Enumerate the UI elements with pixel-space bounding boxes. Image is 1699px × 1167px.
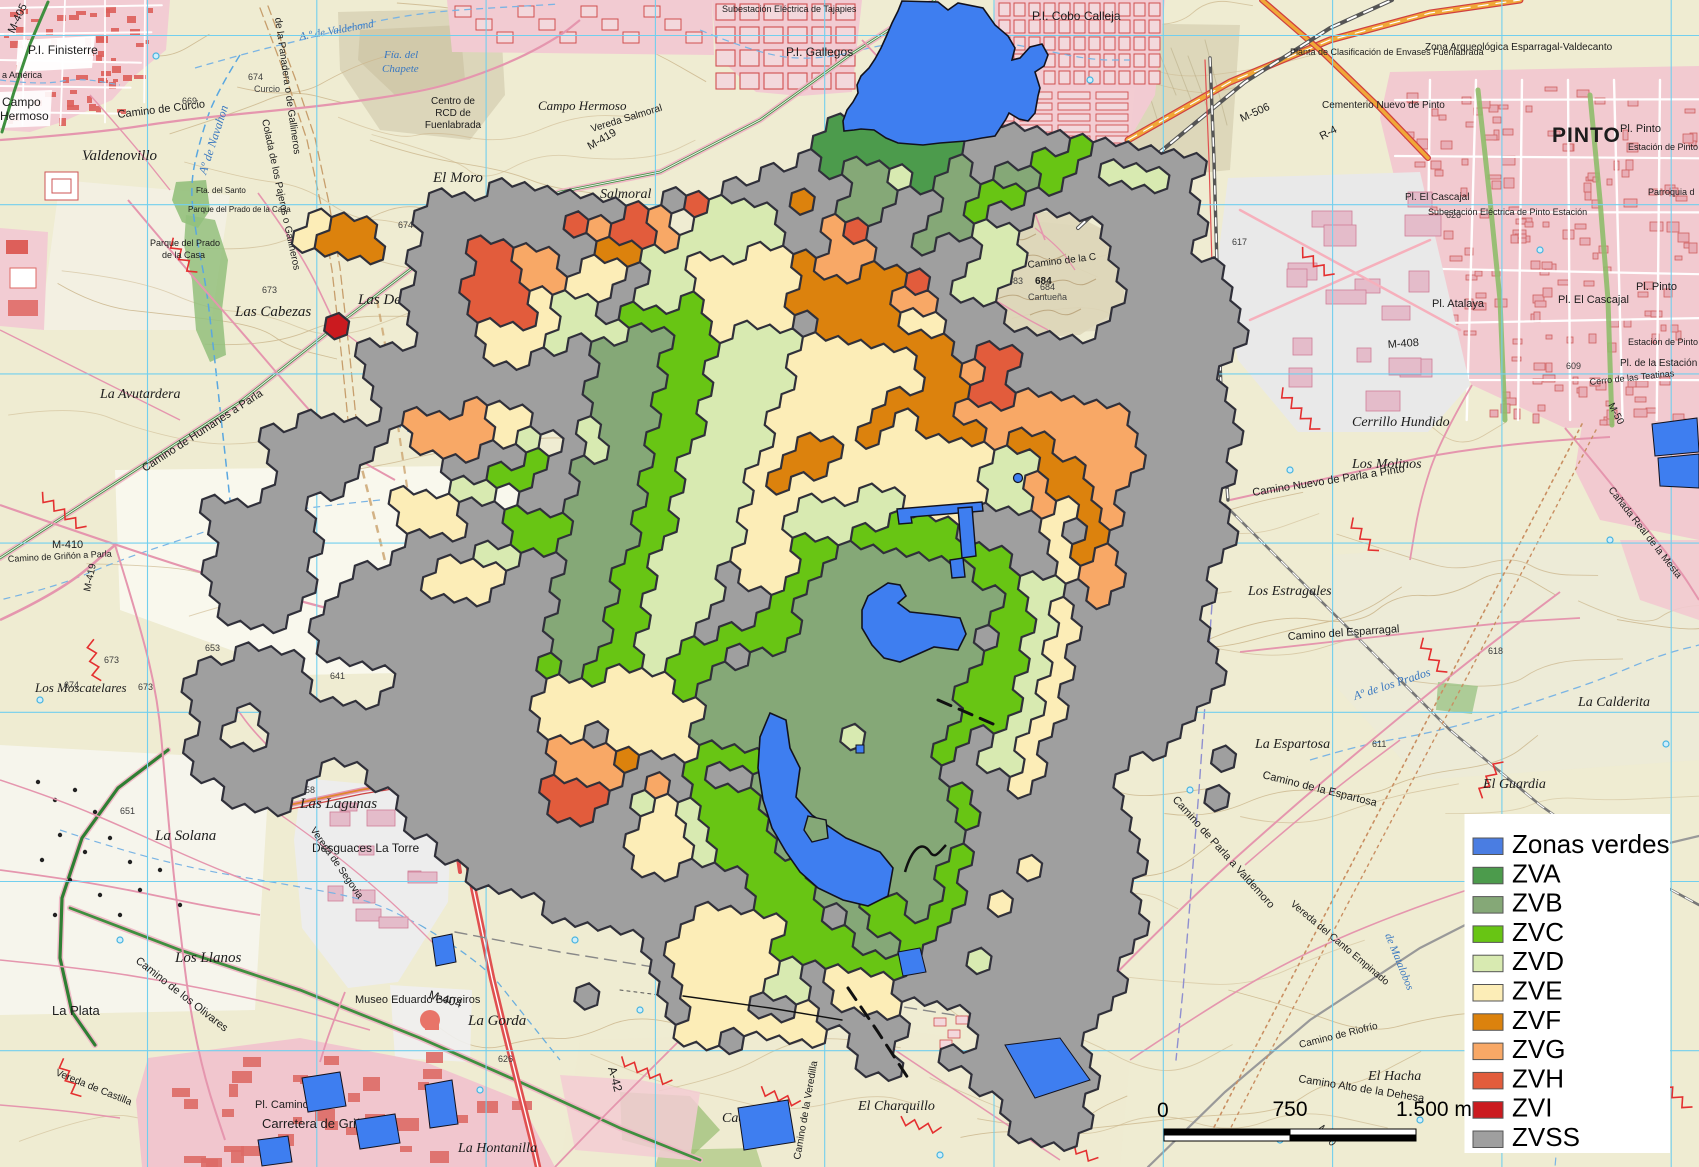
svg-text:Fía. del: Fía. del <box>383 49 418 61</box>
svg-text:ZVSS: ZVSS <box>1512 1122 1580 1152</box>
svg-text:Valdenovillo: Valdenovillo <box>82 148 157 164</box>
svg-text:617: 617 <box>1232 237 1247 247</box>
svg-text:641: 641 <box>330 671 345 681</box>
svg-text:PINTO: PINTO <box>1552 124 1621 147</box>
svg-text:Pl. Atalaya: Pl. Atalaya <box>1432 298 1485 310</box>
svg-text:RCD de: RCD de <box>435 108 471 119</box>
svg-text:La Avutardera: La Avutardera <box>99 387 181 402</box>
svg-text:0: 0 <box>1157 1099 1169 1122</box>
svg-text:Chapete: Chapete <box>382 63 419 75</box>
svg-text:ZVI: ZVI <box>1512 1093 1552 1123</box>
svg-text:Fta. del Santo: Fta. del Santo <box>196 186 246 195</box>
svg-text:ZVE: ZVE <box>1512 976 1563 1006</box>
svg-text:653: 653 <box>205 643 220 653</box>
svg-text:Los Llanos: Los Llanos <box>174 950 241 966</box>
svg-text:626: 626 <box>498 1054 513 1064</box>
svg-text:La Solana: La Solana <box>154 828 216 844</box>
svg-text:673: 673 <box>104 655 119 665</box>
svg-text:611: 611 <box>1372 739 1386 749</box>
svg-text:1.500 m: 1.500 m <box>1396 1098 1472 1121</box>
svg-text:La Espartosa: La Espartosa <box>1254 737 1330 752</box>
svg-text:Curcio: Curcio <box>254 84 280 94</box>
svg-text:Subestación Eléctrica de Tajap: Subestación Eléctrica de Tajapies <box>722 4 857 14</box>
svg-text:673: 673 <box>138 682 153 692</box>
svg-text:M-410: M-410 <box>52 539 83 551</box>
svg-text:684: 684 <box>1040 282 1055 292</box>
svg-text:Fuenlabrada: Fuenlabrada <box>425 120 482 131</box>
svg-text:Las Lagunas: Las Lagunas <box>299 796 377 812</box>
svg-text:ZVF: ZVF <box>1512 1005 1561 1035</box>
svg-text:Campo Hermoso: Campo Hermoso <box>538 98 627 113</box>
svg-text:Parque del Prado de la Casa: Parque del Prado de la Casa <box>188 205 291 214</box>
svg-text:669: 669 <box>182 96 197 106</box>
svg-text:La Hontanilla: La Hontanilla <box>457 1141 537 1156</box>
svg-text:ZVC: ZVC <box>1512 917 1564 947</box>
svg-text:La Plata: La Plata <box>52 1003 100 1018</box>
svg-text:ZVH: ZVH <box>1512 1063 1564 1093</box>
svg-text:750: 750 <box>1272 1098 1307 1121</box>
svg-text:P.I. Cobo Calleja: P.I. Cobo Calleja <box>1032 9 1121 23</box>
svg-text:626: 626 <box>1446 210 1461 220</box>
svg-text:674: 674 <box>398 220 413 230</box>
svg-text:Pl. El Cascajal: Pl. El Cascajal <box>1558 294 1629 306</box>
svg-text:674: 674 <box>248 72 263 82</box>
svg-text:ZVG: ZVG <box>1512 1034 1565 1064</box>
svg-text:Parroquia d: Parroquia d <box>1648 187 1695 197</box>
svg-text:Zonas verdes: Zonas verdes <box>1512 829 1670 859</box>
svg-text:Los Moscatelares: Los Moscatelares <box>34 680 127 695</box>
svg-text:La Gorda: La Gorda <box>467 1013 526 1029</box>
svg-text:ZVB: ZVB <box>1512 888 1563 918</box>
svg-text:Centro de: Centro de <box>431 96 475 107</box>
svg-text:Las Cabezas: Las Cabezas <box>234 304 311 320</box>
svg-text:Parque del Prado: Parque del Prado <box>150 238 220 248</box>
svg-text:El Charquillo: El Charquillo <box>857 1099 935 1114</box>
svg-text:El Guardia: El Guardia <box>1482 777 1546 792</box>
svg-text:673: 673 <box>262 285 277 295</box>
svg-text:Estación de Pinto: Estación de Pinto <box>1628 337 1698 347</box>
svg-text:M-408: M-408 <box>1387 337 1419 351</box>
svg-text:P.I. Finisterre: P.I. Finisterre <box>28 43 98 57</box>
svg-text:Cantueña: Cantueña <box>1028 292 1067 302</box>
svg-text:Planta de Clasificación de Env: Planta de Clasificación de Envases Fuenl… <box>1290 47 1484 57</box>
svg-text:Cerrillo Hundido: Cerrillo Hundido <box>1352 415 1450 430</box>
svg-text:P.I. Gallegos: P.I. Gallegos <box>786 45 853 59</box>
svg-text:Estación de Pinto: Estación de Pinto <box>1628 142 1698 152</box>
svg-text:El Moro: El Moro <box>432 170 483 186</box>
svg-text:609: 609 <box>1566 361 1581 371</box>
svg-text:El Hacha: El Hacha <box>1367 1069 1421 1084</box>
svg-text:a América: a América <box>2 70 42 80</box>
svg-text:Pl. Pinto: Pl. Pinto <box>1620 123 1661 135</box>
svg-text:Campo: Campo <box>2 95 41 109</box>
svg-text:La Calderita: La Calderita <box>1577 695 1650 710</box>
svg-text:Cementerio Nuevo de Pinto: Cementerio Nuevo de Pinto <box>1322 100 1445 111</box>
svg-text:Pl. de la Estación: Pl. de la Estación <box>1620 358 1697 369</box>
svg-text:ZVA: ZVA <box>1512 858 1561 888</box>
svg-text:Hermoso: Hermoso <box>0 109 49 123</box>
svg-text:618: 618 <box>1488 646 1503 656</box>
svg-text:ZVD: ZVD <box>1512 946 1564 976</box>
svg-text:de la Casa: de la Casa <box>162 250 205 260</box>
svg-text:Los Estragales: Los Estragales <box>1247 584 1332 599</box>
svg-text:651: 651 <box>120 806 135 816</box>
svg-text:Pl. El Cascajal: Pl. El Cascajal <box>1405 192 1469 203</box>
svg-text:674: 674 <box>64 680 79 690</box>
svg-text:Valdenovillo: Valdenovillo <box>82 159 87 161</box>
svg-text:Pl. Pinto: Pl. Pinto <box>1636 281 1677 293</box>
